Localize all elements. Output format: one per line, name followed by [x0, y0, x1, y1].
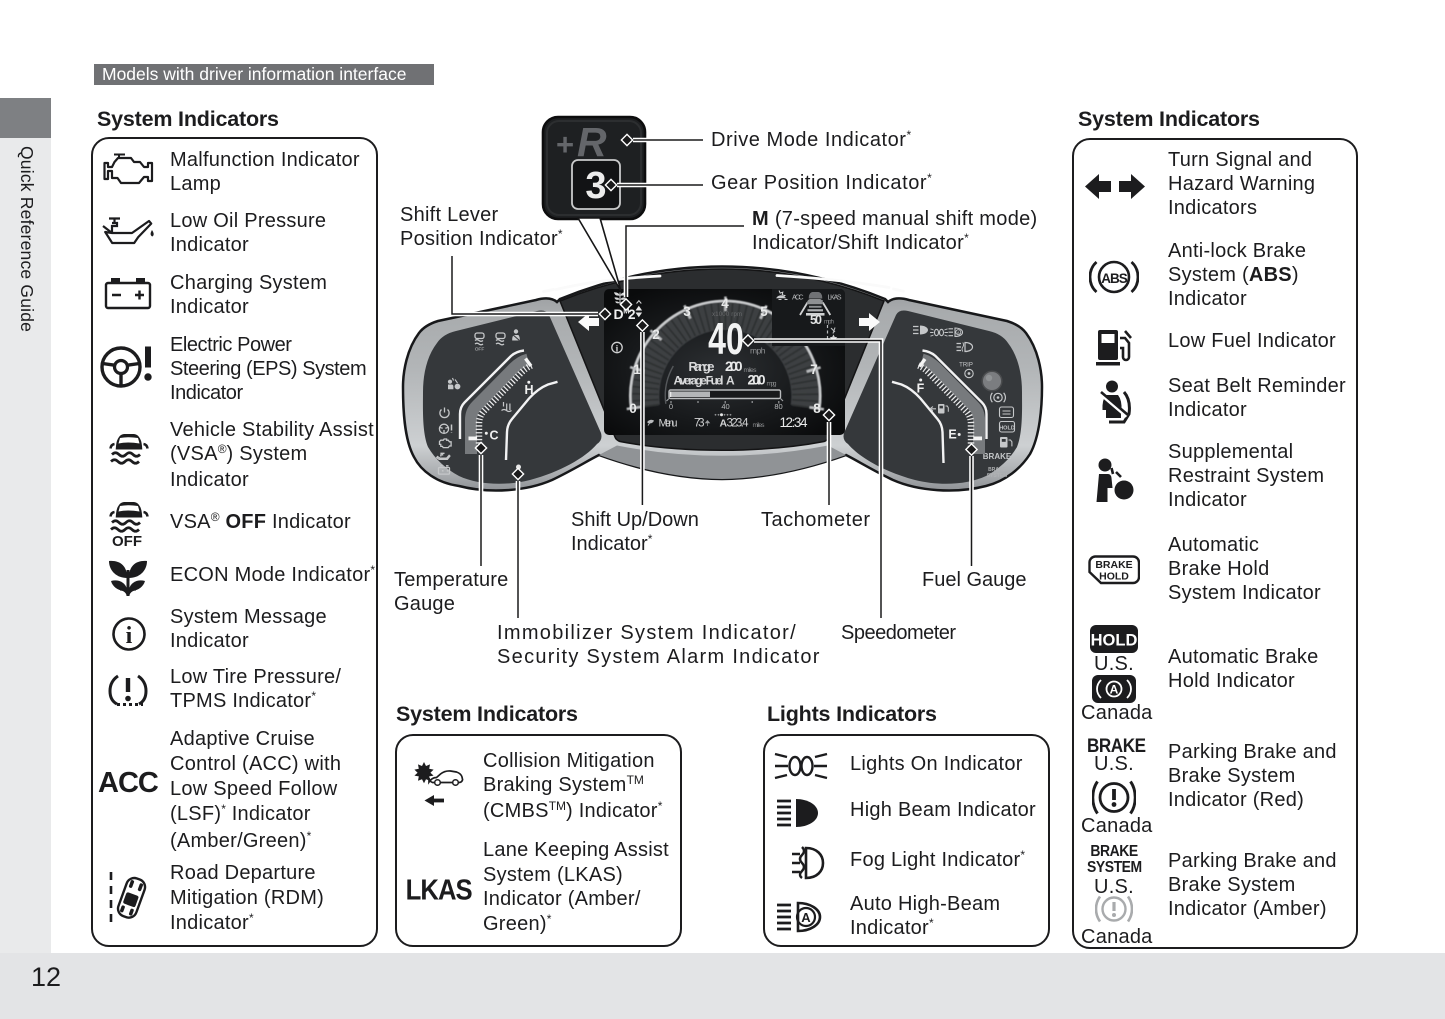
- svg-text:D: D: [614, 306, 624, 322]
- svg-text:BRAKE: BRAKE: [1095, 559, 1132, 571]
- svg-text:Average Fuel: Average Fuel: [674, 374, 724, 388]
- svg-text:i: i: [616, 345, 619, 355]
- svg-text:OFF: OFF: [112, 533, 142, 548]
- svg-text:LKAS: LKAS: [828, 295, 842, 302]
- svg-text:1: 1: [633, 362, 641, 377]
- svg-text:A: A: [726, 374, 735, 388]
- svg-text:A: A: [957, 331, 960, 335]
- svg-text:Range: Range: [689, 360, 715, 374]
- svg-text:mph: mph: [750, 346, 766, 356]
- svg-text:4: 4: [721, 296, 729, 311]
- svg-text:A: A: [801, 910, 811, 925]
- svg-text:C: C: [489, 429, 498, 443]
- svg-text:mpg: mpg: [767, 381, 777, 388]
- svg-text:F: F: [917, 382, 925, 396]
- svg-text:H: H: [524, 383, 533, 397]
- svg-text:40: 40: [708, 315, 744, 364]
- svg-text:50: 50: [810, 313, 822, 327]
- svg-text:TRIP: TRIP: [959, 363, 973, 369]
- svg-text:20.0: 20.0: [748, 373, 766, 388]
- svg-text:323.4: 323.4: [727, 418, 750, 430]
- svg-text:12:34: 12:34: [780, 415, 808, 430]
- svg-text:BRAKE: BRAKE: [983, 452, 1012, 461]
- svg-text:5: 5: [760, 304, 768, 319]
- svg-text:0: 0: [629, 401, 637, 416]
- svg-text:40: 40: [721, 402, 729, 411]
- svg-text:ABS: ABS: [1101, 271, 1127, 286]
- svg-text:Menu: Menu: [659, 418, 678, 430]
- svg-text:2: 2: [628, 307, 636, 322]
- svg-text:HOLD: HOLD: [999, 426, 1015, 432]
- svg-text:OFF: OFF: [475, 347, 485, 353]
- svg-text:R: R: [577, 119, 607, 165]
- svg-text:+: +: [556, 127, 574, 162]
- svg-text:mph: mph: [824, 320, 834, 326]
- svg-text:miles: miles: [753, 422, 766, 429]
- svg-text:73: 73: [694, 418, 705, 430]
- svg-text:3: 3: [585, 165, 606, 207]
- svg-text:E: E: [948, 428, 956, 442]
- svg-text:3: 3: [683, 304, 691, 319]
- svg-text:ACC: ACC: [792, 295, 804, 302]
- svg-text:2: 2: [652, 327, 660, 342]
- svg-text:HOLD: HOLD: [1099, 571, 1129, 583]
- svg-text:80: 80: [774, 402, 782, 411]
- svg-text:HOLD: HOLD: [1091, 632, 1138, 650]
- svg-text:0: 0: [669, 402, 673, 411]
- svg-text:A: A: [1110, 683, 1119, 697]
- svg-text:200: 200: [725, 358, 743, 374]
- svg-text:i: i: [126, 623, 133, 649]
- svg-text:SYSTEM: SYSTEM: [987, 473, 1008, 479]
- svg-text:7: 7: [810, 362, 818, 377]
- svg-text:8: 8: [813, 401, 821, 416]
